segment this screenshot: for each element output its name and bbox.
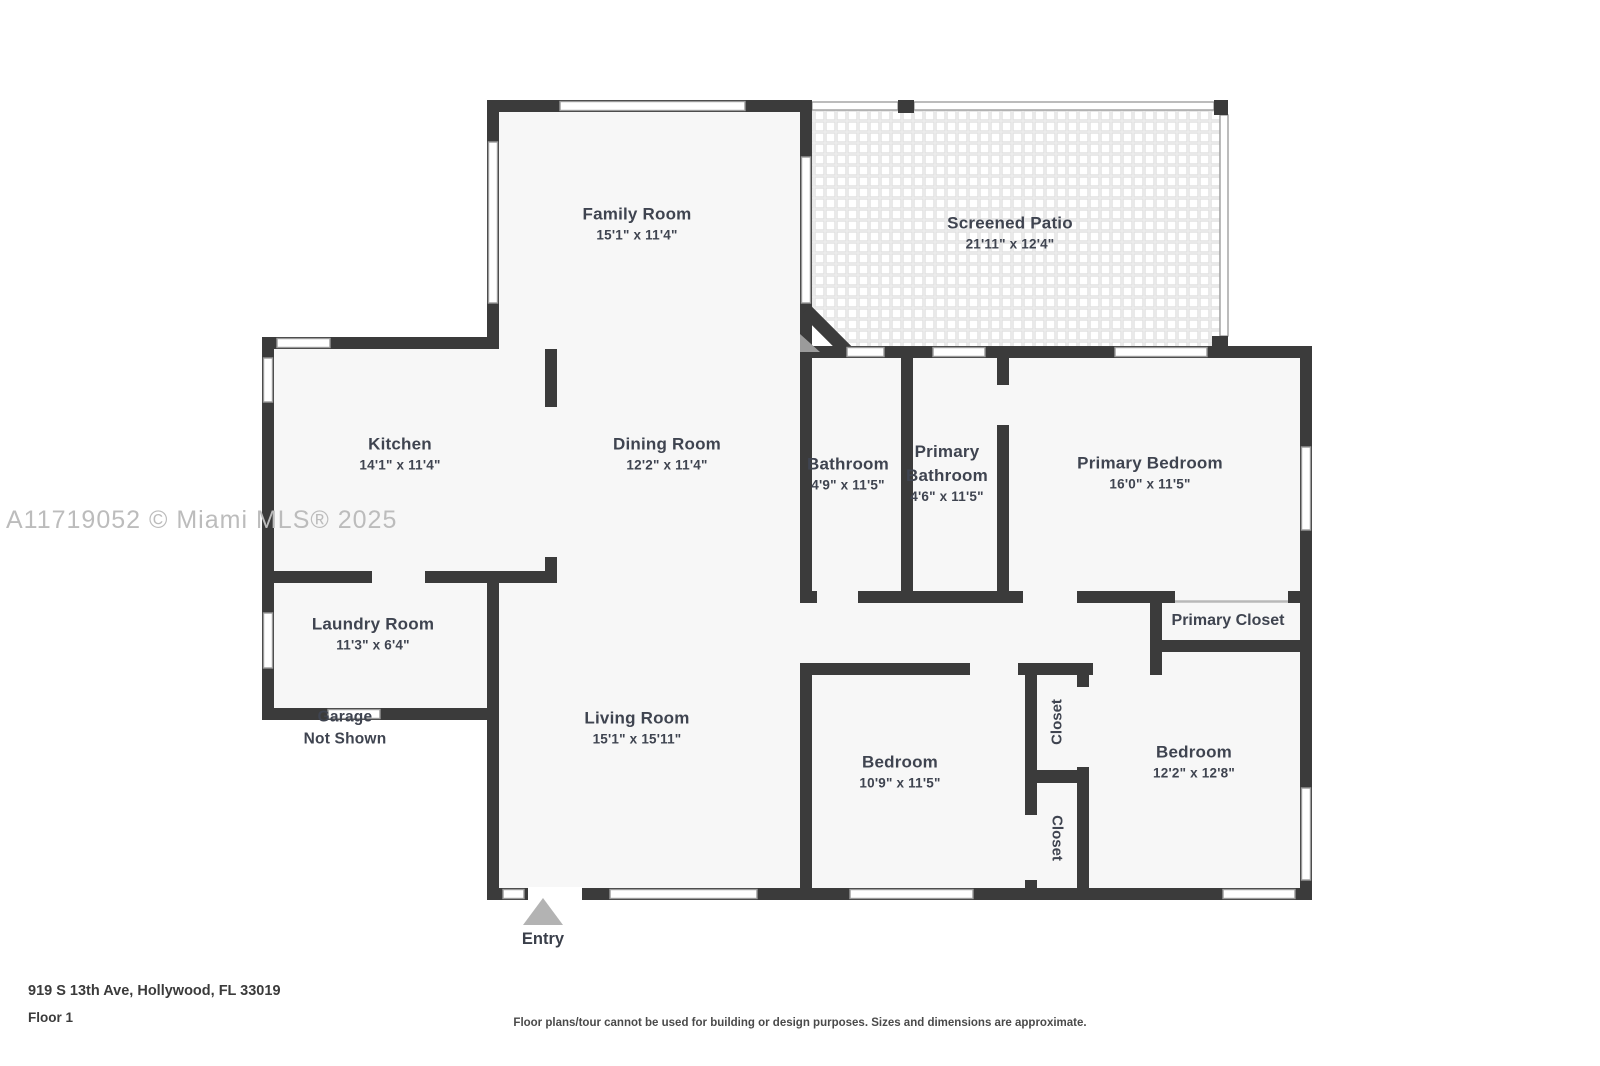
room-label-bedroom2: Bedroom 12'2" x 12'8"	[1153, 741, 1235, 784]
door-primary-bedroom	[1023, 590, 1077, 604]
window-bathroom-patio	[847, 348, 884, 357]
mls-watermark: A11719052 © Miami MLS® 2025	[6, 506, 397, 535]
door-bedroom2	[1093, 662, 1150, 676]
window-kitchen-top	[277, 339, 330, 348]
entry-label: Entry	[522, 930, 564, 949]
room-label-laundry-room: Laundry Room 11'3" x 6'4"	[312, 613, 434, 656]
door-bedroom1	[970, 662, 1018, 676]
room-label-bathroom: Bathroom 4'9" x 11'5"	[807, 453, 889, 496]
door-closet-bottom	[1024, 815, 1038, 880]
room-label-primary-bedroom: Primary Bedroom 16'0" x 11'5"	[1077, 452, 1223, 495]
door-bathroom	[817, 590, 858, 604]
family-room-name: Family Room	[583, 203, 692, 227]
wall-hall-end	[1150, 591, 1162, 675]
room-label-primary-closet: Primary Closet	[1172, 610, 1285, 632]
laundry-dims: 11'3" x 6'4"	[312, 636, 434, 655]
window-kitchen-left	[264, 358, 273, 402]
patio-screen-top-right	[914, 102, 1214, 110]
patio-name: Screened Patio	[947, 212, 1073, 236]
window-primary-bedroom-patio	[1115, 348, 1207, 357]
living-name: Living Room	[584, 707, 689, 731]
window-living-south-small	[503, 890, 524, 899]
wall-living-bedroom-divider	[800, 663, 812, 900]
footer-address: 919 S 13th Ave, Hollywood, FL 33019	[28, 983, 281, 999]
wall-kitchen-stub-top	[545, 349, 557, 407]
floor-plan-page: A11719052 © Miami MLS® 2025 Family Room …	[0, 0, 1600, 1066]
dining-name: Dining Room	[613, 433, 721, 457]
primary-bedroom-name: Primary Bedroom	[1077, 452, 1223, 476]
window-bedroom1-south	[850, 890, 973, 899]
door-closet-top	[1076, 687, 1090, 767]
door-entry-opening	[528, 887, 582, 901]
primary-bedroom-dims: 16'0" x 11'5"	[1077, 475, 1223, 494]
bedroom2-name: Bedroom	[1153, 741, 1235, 765]
primary-closet-name: Primary Closet	[1172, 612, 1285, 629]
primary-bathroom-name-line2: Bathroom	[906, 464, 988, 488]
room-label-family-room: Family Room 15'1" x 11'4"	[583, 203, 692, 246]
window-primary-bedroom-right	[1302, 447, 1311, 530]
window-bedroom2-right	[1302, 788, 1311, 880]
wall-primary-closet-bottom	[1150, 640, 1312, 652]
patio-screen-top-left	[812, 102, 898, 110]
room-label-screened-patio: Screened Patio 21'11" x 12'4"	[947, 212, 1073, 255]
door-primary-bathroom	[996, 385, 1010, 425]
door-kitchen-laundry	[372, 570, 425, 584]
family-room-dims: 15'1" x 11'4"	[583, 226, 692, 245]
room-label-dining-room: Dining Room 12'2" x 11'4"	[613, 433, 721, 476]
patio-dims: 21'11" x 12'4"	[947, 235, 1073, 254]
bedroom1-dims: 10'9" x 11'5"	[859, 774, 940, 793]
room-floors	[268, 106, 1306, 894]
bedroom2-dims: 12'2" x 12'8"	[1153, 764, 1235, 783]
window-family-left	[489, 142, 498, 303]
entry-triangle-icon	[523, 898, 563, 925]
dining-dims: 12'2" x 11'4"	[613, 456, 721, 475]
wall-closet-divider	[1025, 770, 1089, 783]
room-label-bedroom1: Bedroom 10'9" x 11'5"	[859, 751, 940, 794]
window-family-top	[560, 102, 745, 111]
wall-primary-closet-nub-right	[1288, 591, 1300, 603]
label-garage-not-shown: Garage Not Shown	[304, 706, 387, 749]
kitchen-name: Kitchen	[359, 433, 440, 457]
window-family-patio	[802, 157, 811, 303]
room-label-primary-bathroom: Primary Bathroom 4'6" x 11'5"	[906, 440, 988, 506]
primary-bathroom-name-line1: Primary	[906, 440, 988, 464]
footer-floor-number: Floor 1	[28, 1010, 73, 1025]
room-label-living-room: Living Room 15'1" x 15'11"	[584, 707, 689, 750]
garage-line2: Not Shown	[304, 728, 387, 750]
window-bedroom2-south	[1223, 890, 1295, 899]
bedroom1-name: Bedroom	[859, 751, 940, 775]
garage-line1: Garage	[304, 706, 387, 728]
bathroom-dims: 4'9" x 11'5"	[807, 476, 889, 495]
window-primary-bath-patio	[933, 348, 985, 357]
wall-living-left	[487, 571, 499, 900]
bathroom-name: Bathroom	[807, 453, 889, 477]
kitchen-dims: 14'1" x 11'4"	[359, 456, 440, 475]
room-label-closet-bottom: Closet	[1049, 815, 1066, 861]
laundry-name: Laundry Room	[312, 613, 434, 637]
window-laundry-left	[264, 613, 273, 668]
room-label-closet-top: Closet	[1049, 699, 1066, 745]
room-label-kitchen: Kitchen 14'1" x 11'4"	[359, 433, 440, 476]
living-dims: 15'1" x 15'11"	[584, 730, 689, 749]
patio-screen-right	[1220, 115, 1228, 336]
footer-disclaimer: Floor plans/tour cannot be used for buil…	[513, 1017, 1086, 1029]
primary-bathroom-dims: 4'6" x 11'5"	[906, 487, 988, 506]
wall-primary-closet-nub-left	[1162, 591, 1175, 603]
window-living-south	[610, 890, 757, 899]
